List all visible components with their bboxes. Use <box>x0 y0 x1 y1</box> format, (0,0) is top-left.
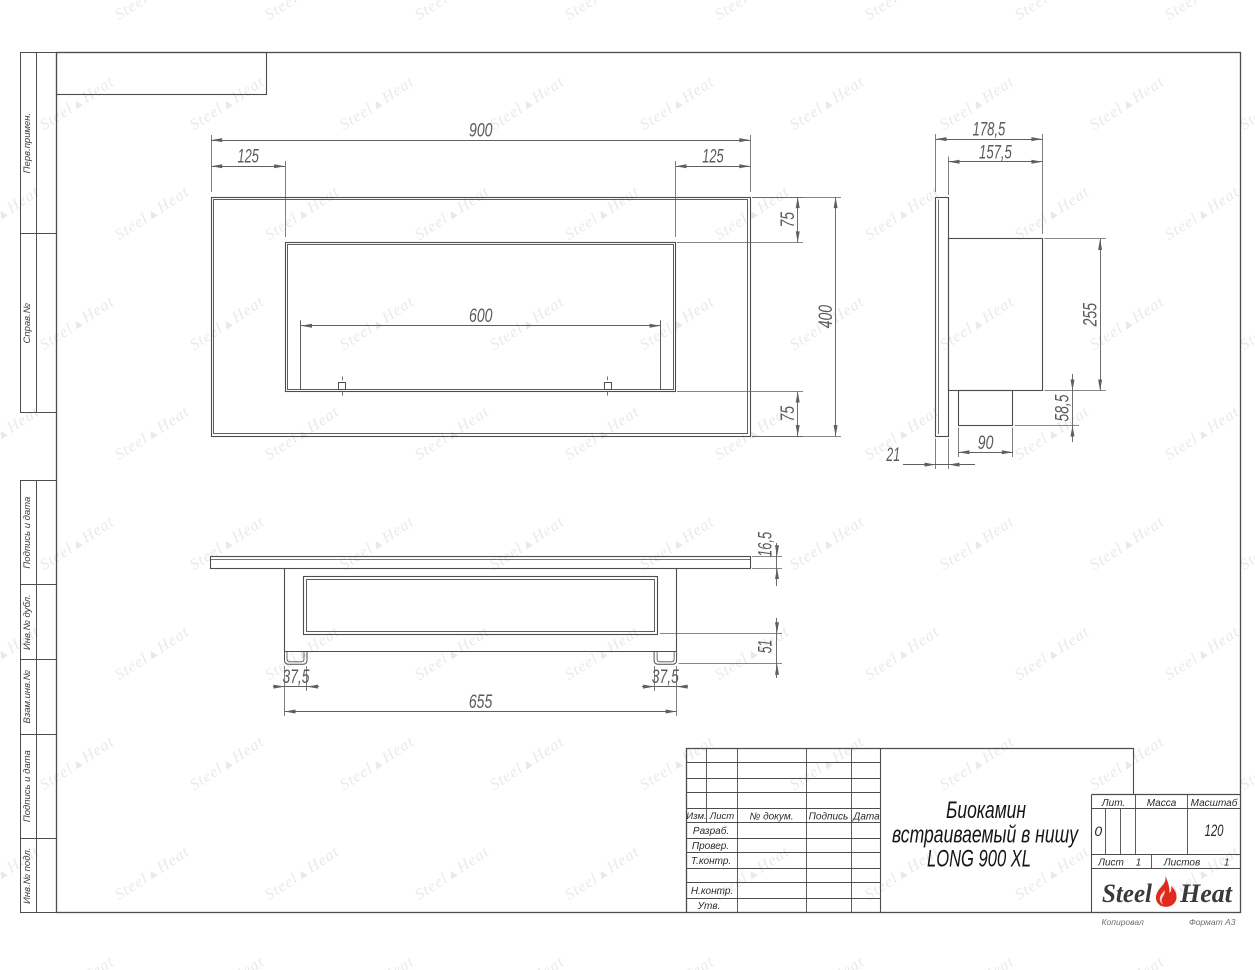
svg-text:Подпись и дата: Подпись и дата <box>22 750 33 822</box>
svg-text:Справ.№: Справ.№ <box>22 303 33 344</box>
svg-text:Подпись: Подпись <box>809 812 849 823</box>
svg-text:Масштаб: Масштаб <box>1191 797 1238 809</box>
svg-text:Копировал: Копировал <box>1102 917 1144 927</box>
svg-text:Подпись и дата: Подпись и дата <box>22 497 33 569</box>
svg-text:600: 600 <box>469 306 493 327</box>
svg-text:Изм.: Изм. <box>686 811 706 822</box>
svg-text:255: 255 <box>1081 303 1102 327</box>
svg-text:178,5: 178,5 <box>973 120 1006 141</box>
svg-text:№ докум.: № докум. <box>749 812 793 823</box>
svg-text:655: 655 <box>469 692 493 713</box>
svg-text:Формат А3: Формат А3 <box>1189 917 1236 927</box>
svg-text:Лист: Лист <box>709 811 735 822</box>
svg-text:Н.контр.: Н.контр. <box>691 886 733 897</box>
svg-text:16,5: 16,5 <box>756 532 777 557</box>
svg-text:400: 400 <box>816 305 837 329</box>
svg-text:0: 0 <box>1094 823 1102 839</box>
svg-text:LONG 900 XL: LONG 900 XL <box>927 846 1031 873</box>
svg-text:Взам.инв.№: Взам.инв.№ <box>22 670 33 723</box>
svg-text:Утв.: Утв. <box>697 901 721 912</box>
svg-text:Steel: Steel <box>1102 879 1153 908</box>
svg-text:Инв.№ подл.: Инв.№ подл. <box>22 848 33 904</box>
svg-text:75: 75 <box>778 212 799 228</box>
svg-text:21: 21 <box>886 445 900 466</box>
svg-text:900: 900 <box>469 121 493 142</box>
svg-text:37,5: 37,5 <box>652 667 679 688</box>
svg-text:Дата: Дата <box>852 812 880 823</box>
svg-text:51: 51 <box>756 640 777 654</box>
svg-text:Провер.: Провер. <box>692 841 729 852</box>
svg-text:Инв.№ дубл.: Инв.№ дубл. <box>22 594 33 650</box>
svg-text:Лист: Лист <box>1097 858 1124 869</box>
svg-text:58,5: 58,5 <box>1053 394 1074 421</box>
svg-text:Т.контр.: Т.контр. <box>691 856 731 867</box>
svg-text:125: 125 <box>702 147 724 168</box>
svg-text:37,5: 37,5 <box>283 667 310 688</box>
svg-text:Масса: Масса <box>1147 798 1177 809</box>
svg-text:Биокамин: Биокамин <box>946 797 1026 824</box>
svg-text:125: 125 <box>237 147 259 168</box>
svg-text:Лит.: Лит. <box>1101 798 1125 809</box>
svg-text:Перв.примен.: Перв.примен. <box>22 113 33 174</box>
svg-text:1: 1 <box>1224 858 1230 869</box>
svg-text:1: 1 <box>1136 858 1142 869</box>
svg-text:Разраб.: Разраб. <box>693 825 729 837</box>
svg-text:встраиваемый в нишу: встраиваемый в нишу <box>892 822 1079 849</box>
svg-text:Heat: Heat <box>1179 879 1233 908</box>
svg-text:157,5: 157,5 <box>979 142 1012 163</box>
svg-text:Листов: Листов <box>1163 858 1200 869</box>
svg-text:75: 75 <box>778 406 799 422</box>
svg-text:90: 90 <box>978 433 994 454</box>
svg-text:120: 120 <box>1205 822 1225 840</box>
